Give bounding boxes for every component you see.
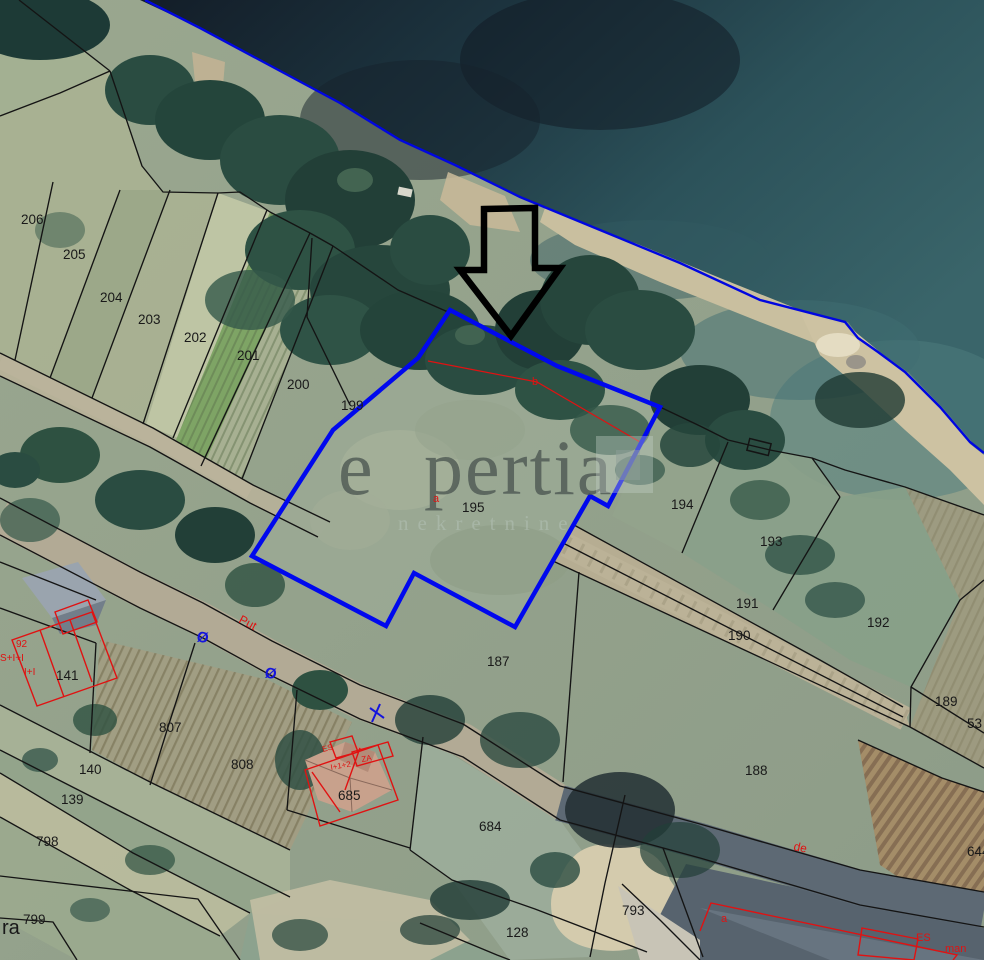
parcel-number-label: 190 [728, 628, 751, 643]
cadastral-annotation-label: S+I+I [0, 653, 24, 664]
parcel-number-label: 685 [338, 788, 361, 803]
parcel-number-label: 141 [56, 668, 79, 683]
parcel-number-label: 202 [184, 330, 207, 345]
parcel-number-label: 193 [760, 534, 783, 549]
parcel-number-label: 204 [100, 290, 123, 305]
parcel-number-label: 205 [63, 247, 86, 262]
parcel-number-label: 684 [479, 819, 502, 834]
parcel-number-label: 188 [745, 763, 768, 778]
parcel-number-label: 139 [61, 792, 84, 807]
parcel-number-label: 808 [231, 757, 254, 772]
parcel-number-label: 53 [967, 716, 982, 731]
watermark-word-end: pertia [424, 424, 614, 511]
parcel-number-label: 807 [159, 720, 182, 735]
parcel-number-label: 189 [935, 694, 958, 709]
parcel-number-label: 187 [487, 654, 510, 669]
parcel-number-label: 798 [36, 834, 59, 849]
watermark-tagline: nekretnine [398, 511, 577, 535]
cadastral-annotation-label: ES [916, 932, 931, 944]
parcel-number-label: 200 [287, 377, 310, 392]
cadastral-annotation-label: 92 [16, 639, 28, 650]
watermark-word-start: e [338, 424, 375, 511]
cadastral-annotation-label: a [721, 913, 728, 925]
cadastral-annotation-label: b [532, 376, 538, 388]
cadastral-annotation-label: I+I [24, 667, 35, 678]
parcel-number-label: 191 [736, 596, 759, 611]
parcel-number-label: 192 [867, 615, 890, 630]
parcel-number-label: 195 [462, 500, 485, 515]
parcel-number-label: 194 [671, 497, 694, 512]
parcel-number-label: 140 [79, 762, 102, 777]
parcel-number-label: 203 [138, 312, 161, 327]
parcel-number-label: 799 [23, 912, 46, 927]
parcel-number-label: 644 [967, 844, 984, 859]
aerial-map: e pertia nekretnine 20620520420320220120… [0, 0, 984, 960]
parcel-number-label: 201 [237, 348, 260, 363]
map-viewport: e pertia nekretnine 20620520420320220120… [0, 0, 984, 960]
parcel-number-label: ra [2, 917, 21, 939]
cadastral-annotation-label: man [945, 943, 966, 955]
parcel-number-label: 199 [341, 398, 364, 413]
cadastral-annotation-label: a [433, 493, 440, 505]
parcel-number-label: 206 [21, 212, 44, 227]
parcel-number-label: 128 [506, 925, 529, 940]
parcel-number-label: 793 [622, 903, 645, 918]
